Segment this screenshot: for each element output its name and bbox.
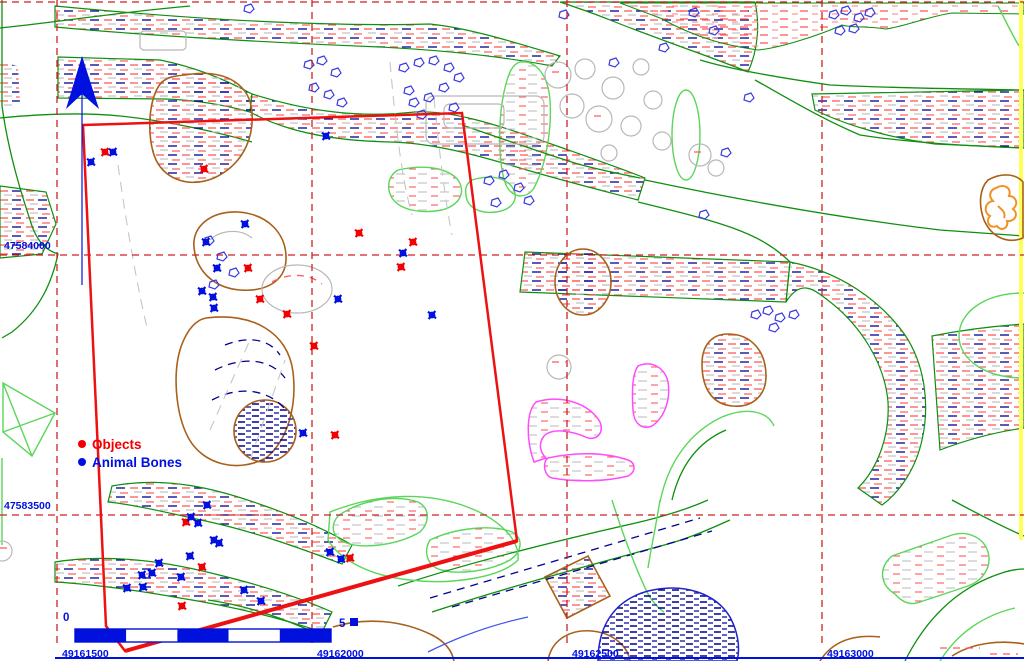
brown-mound-inner-ring [234, 400, 296, 462]
animal-bone-marker [425, 308, 440, 323]
object-marker [307, 339, 322, 354]
legend-bones-label: Animal Bones [92, 455, 182, 470]
yellow-edge-strip [1019, 0, 1023, 540]
animal-bone-marker [238, 217, 253, 232]
scale-bar-segment [126, 629, 177, 642]
object-marker [352, 226, 367, 241]
magenta-feature-3 [545, 454, 634, 481]
object-marker [328, 428, 343, 443]
scale-bar-segment [229, 629, 280, 642]
legend-objects-marker [78, 440, 86, 448]
magenta-feature-1 [633, 364, 669, 427]
brown-pit-mid-left [194, 212, 286, 290]
orange-figure-outline [981, 175, 1023, 240]
animal-bone-marker [207, 301, 222, 316]
scale-bar-segment [75, 629, 126, 642]
object-marker [406, 235, 421, 250]
orange-figure [986, 186, 1016, 229]
animal-bone-marker [195, 284, 210, 299]
site-plan-drawing: 4758400047583500491615004916200049162500… [0, 0, 1024, 661]
object-marker [394, 260, 409, 275]
magenta-feature-2 [528, 399, 601, 462]
object-marker [175, 599, 190, 614]
map-canvas[interactable]: 4758400047583500491615004916200049162500… [0, 0, 1024, 661]
brown-pit-right [702, 334, 766, 406]
scale-bar-segment [280, 629, 331, 642]
animal-bone-marker [183, 549, 198, 564]
object-marker [241, 261, 256, 276]
legend-bones-marker [78, 458, 86, 466]
animal-bone-marker [206, 290, 221, 305]
scale-end-label: 5 [339, 618, 346, 630]
legend: Objects Animal Bones [78, 437, 182, 470]
object-marker [280, 307, 295, 322]
animal-bone-marker [296, 426, 311, 441]
legend-objects-label: Objects [92, 437, 142, 452]
animal-bone-marker [396, 246, 411, 261]
grid-label-northing: 47584000 [4, 240, 51, 252]
animal-bone-marker [331, 292, 346, 307]
scale-unit-marker [350, 618, 358, 626]
animal-bone-marker [210, 261, 225, 276]
scale-zero-label: 0 [63, 612, 69, 624]
scale-bar-segment [177, 629, 228, 642]
brown-pit-center [555, 249, 611, 315]
grid-label-northing: 47583500 [4, 500, 51, 512]
